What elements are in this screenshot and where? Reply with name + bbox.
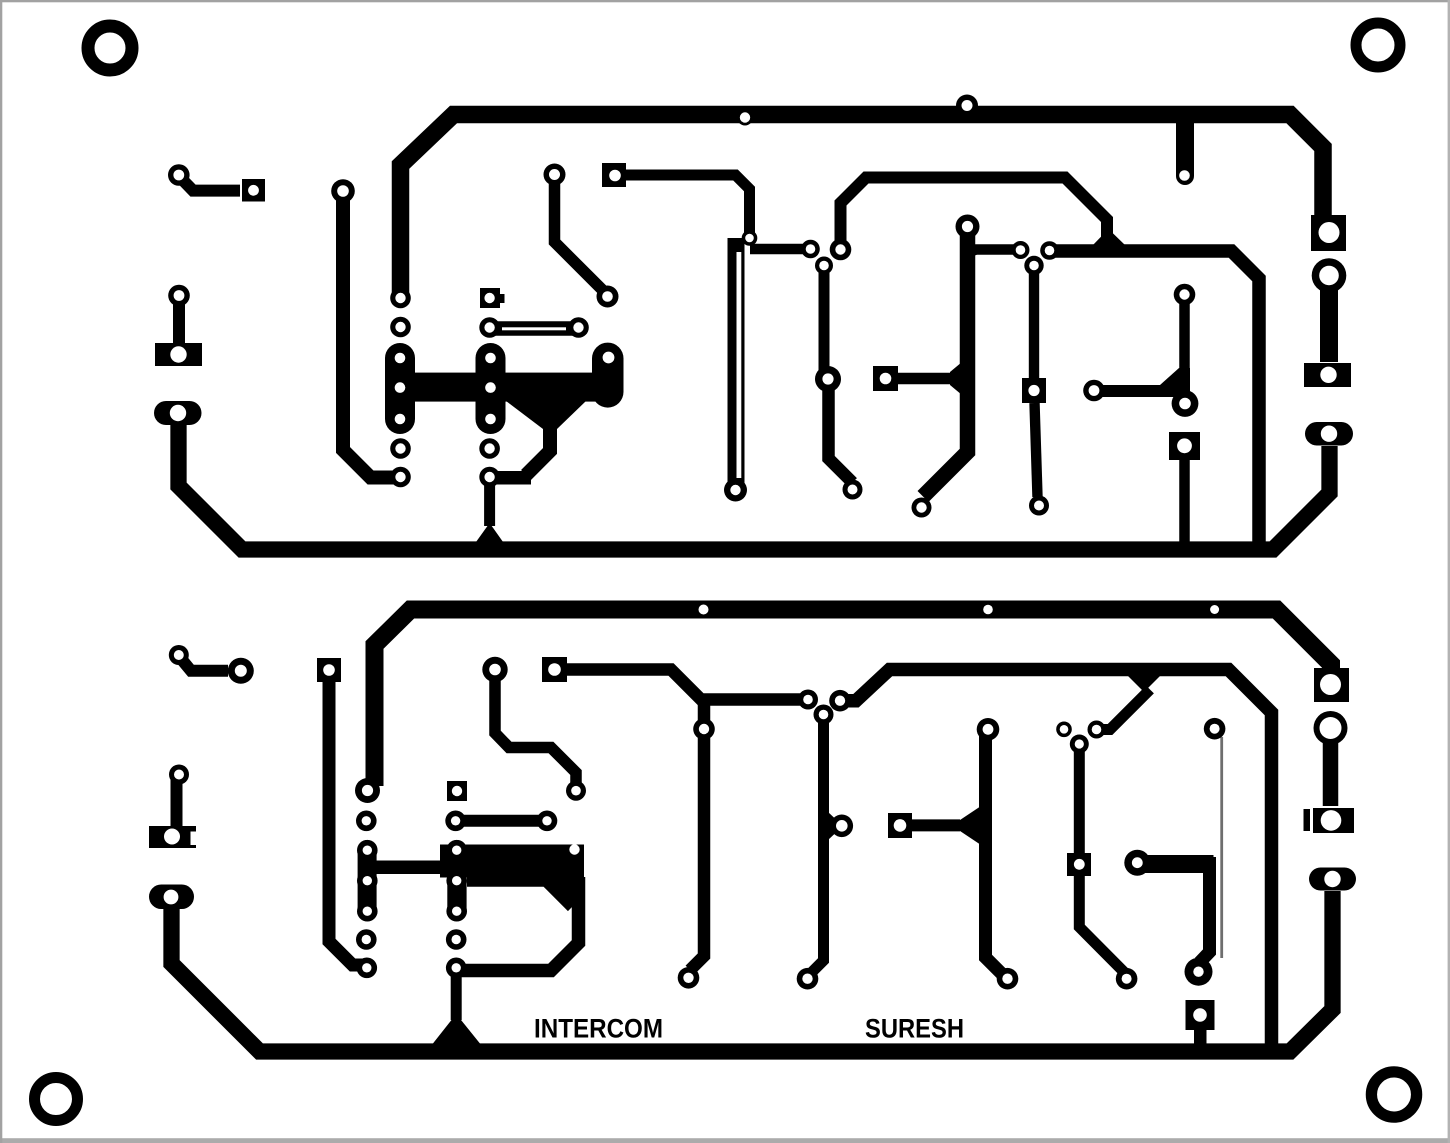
- svg-text:SURESH: SURESH: [865, 1014, 964, 1044]
- svg-text:INTERCOM: INTERCOM: [534, 1014, 663, 1044]
